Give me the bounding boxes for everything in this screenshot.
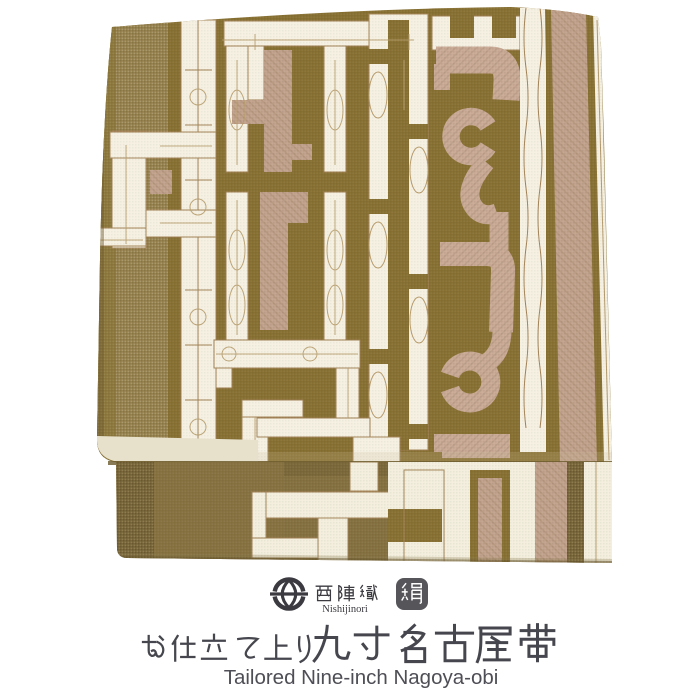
svg-text:Tailored Nine-inch Nagoya-obi: Tailored Nine-inch Nagoya-obi xyxy=(224,666,499,689)
svg-text:Nishijinori: Nishijinori xyxy=(322,604,368,615)
